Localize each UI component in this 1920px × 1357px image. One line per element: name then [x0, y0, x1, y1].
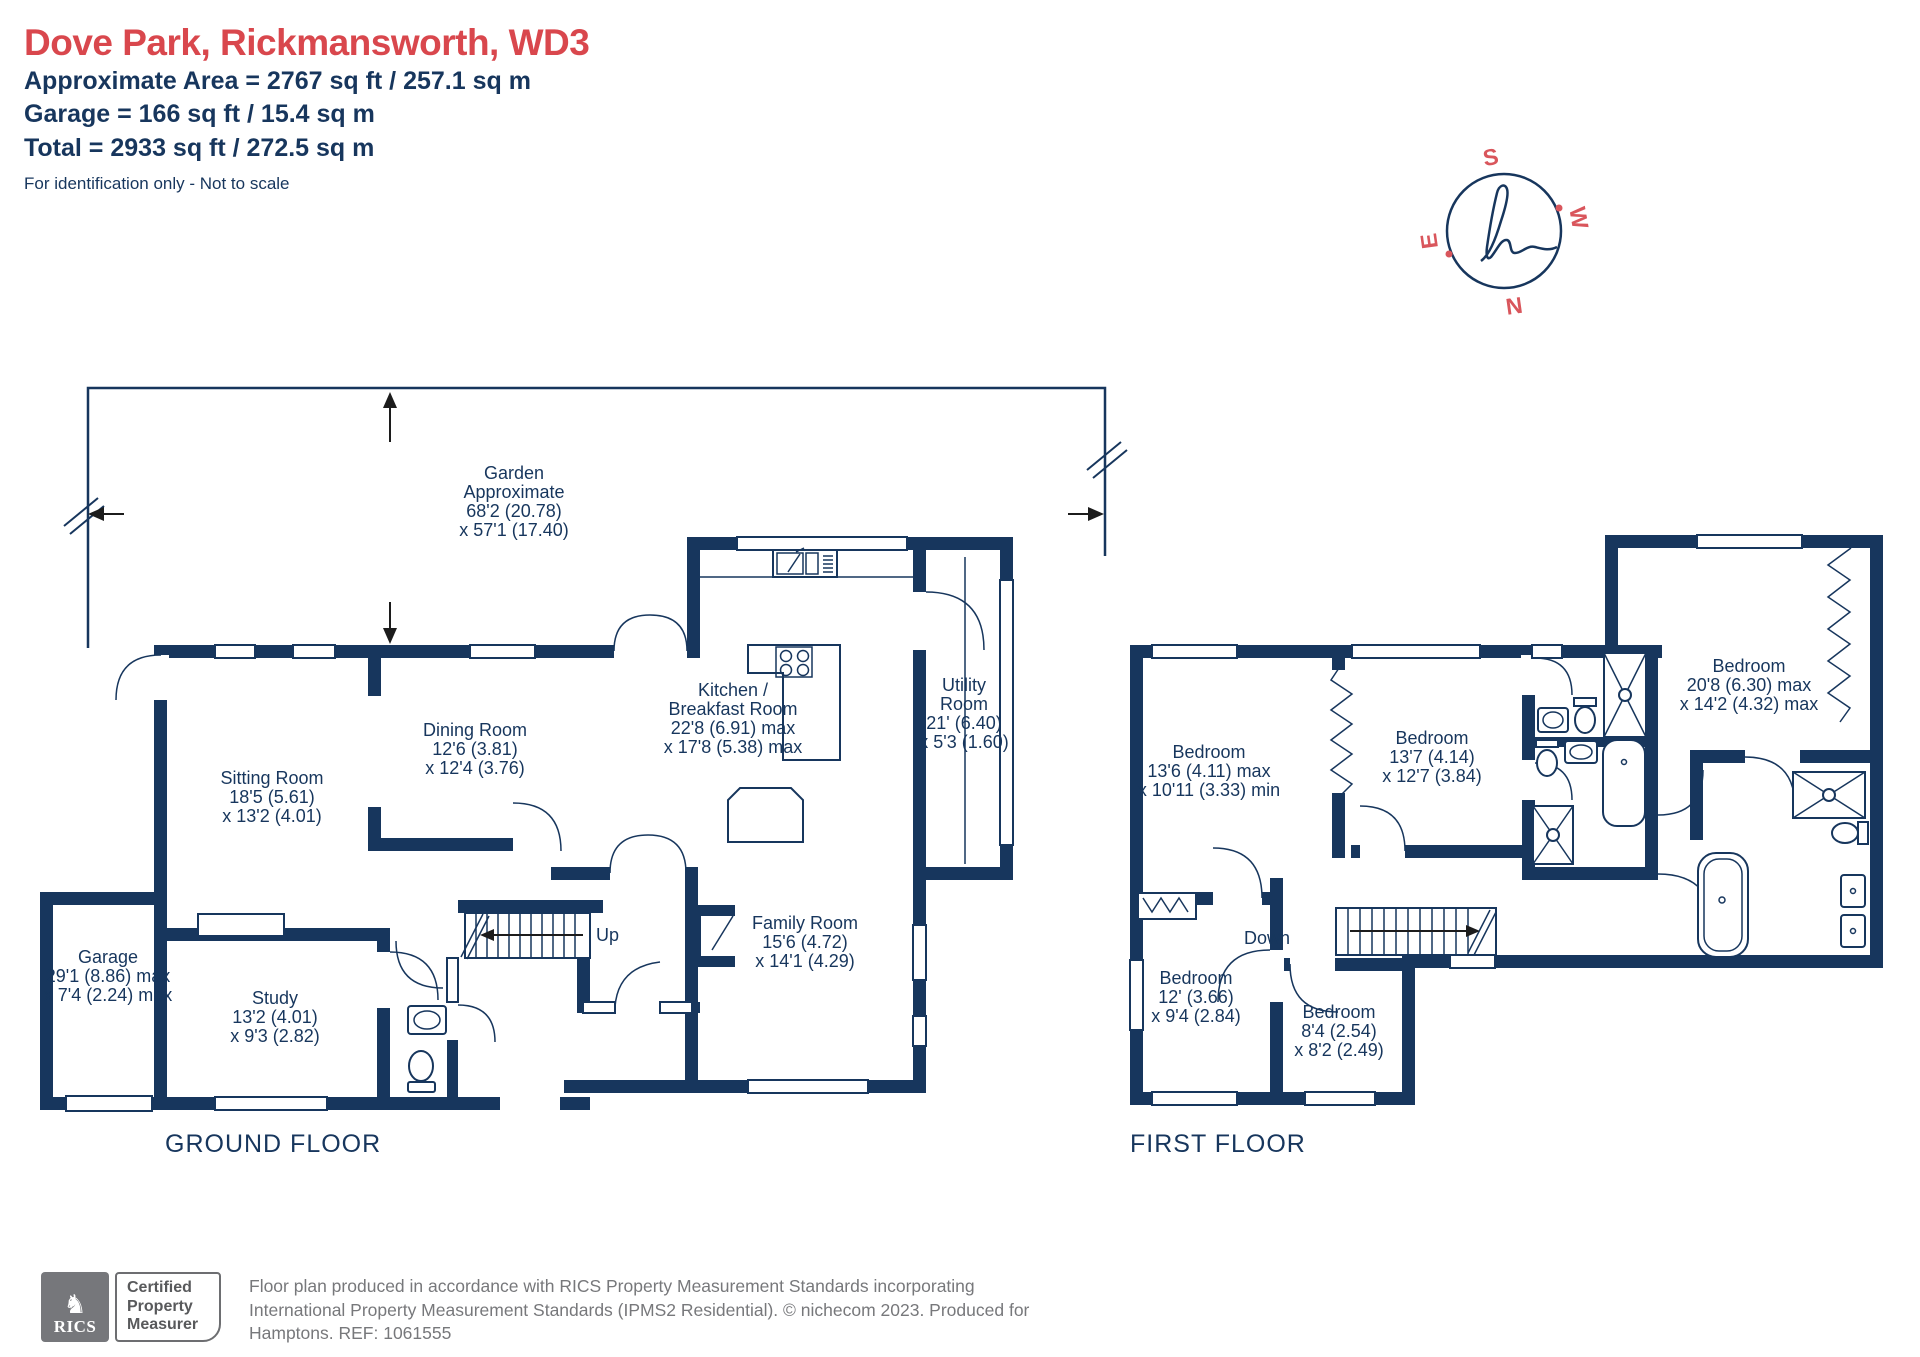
- svg-text:Room: Room: [940, 694, 988, 714]
- svg-text:x 10'11 (3.33) min: x 10'11 (3.33) min: [1138, 780, 1280, 800]
- dining-room-label: Dining Room: [423, 720, 527, 740]
- svg-text:Breakfast Room: Breakfast Room: [668, 699, 797, 719]
- svg-text:13'6 (4.11) max: 13'6 (4.11) max: [1147, 761, 1270, 781]
- svg-text:x 13'2 (4.01): x 13'2 (4.01): [222, 806, 322, 826]
- svg-text:12' (3.66): 12' (3.66): [1158, 987, 1233, 1007]
- first-walls: [1130, 535, 1883, 1105]
- svg-text:x 9'4 (2.84): x 9'4 (2.84): [1151, 1006, 1240, 1026]
- floorplans: Garden Approximate 68'2 (20.78) x 57'1 (…: [0, 0, 1920, 1357]
- ground-labels: Garden Approximate 68'2 (20.78) x 57'1 (…: [44, 463, 1009, 1158]
- stairs-up: [461, 913, 590, 959]
- family-room-label: Family Room: [752, 913, 858, 933]
- svg-text:12'6 (3.81): 12'6 (3.81): [432, 739, 518, 759]
- first-floor-plan: Bedroom 13'6 (4.11) max x 10'11 (3.33) m…: [1130, 535, 1883, 1158]
- rics-lion-icon: ♞: [63, 1291, 86, 1317]
- svg-text:22'8 (6.91) max: 22'8 (6.91) max: [671, 718, 796, 738]
- svg-text:x 17'8 (5.38) max: x 17'8 (5.38) max: [664, 737, 803, 757]
- svg-text:x 5'3 (1.60): x 5'3 (1.60): [919, 732, 1008, 752]
- svg-text:29'1 (8.86) max: 29'1 (8.86) max: [46, 966, 171, 986]
- rics-label: RICS: [54, 1317, 97, 1337]
- svg-text:x 14'2 (4.32) max: x 14'2 (4.32) max: [1680, 694, 1819, 714]
- ground-floor-title: GROUND FLOOR: [165, 1130, 381, 1158]
- bathtub-icon: [1698, 853, 1748, 957]
- shower-icon: [1533, 806, 1573, 864]
- bathtub-icon: [1603, 740, 1645, 826]
- bedroom1-label: Bedroom: [1172, 742, 1245, 762]
- svg-text:x 8'2 (2.49): x 8'2 (2.49): [1294, 1040, 1383, 1060]
- svg-text:Approximate: Approximate: [463, 482, 564, 502]
- svg-text:20'8 (6.30) max: 20'8 (6.30) max: [1687, 675, 1812, 695]
- bedroom5-label: Bedroom: [1302, 1002, 1375, 1022]
- garden-boundary: [64, 388, 1127, 648]
- breakfast-table: [728, 788, 803, 842]
- certified-property-measurer-badge: Certified Property Measurer: [115, 1272, 221, 1342]
- shower-icon: [1604, 653, 1646, 737]
- svg-text:18'5 (5.61): 18'5 (5.61): [229, 787, 315, 807]
- toilet-icon: [1832, 822, 1868, 844]
- footer-disclaimer: Floor plan produced in accordance with R…: [249, 1272, 1029, 1346]
- svg-text:x 12'7 (3.84): x 12'7 (3.84): [1382, 766, 1482, 786]
- sink-icon: [1841, 875, 1865, 947]
- garden-label: Garden: [484, 463, 544, 483]
- kitchen-label: Kitchen /: [698, 680, 768, 700]
- first-floor-title: FIRST FLOOR: [1130, 1130, 1306, 1158]
- sink-icon: [1538, 708, 1568, 732]
- toilet-icon: [1574, 698, 1596, 733]
- study-label: Study: [252, 988, 298, 1008]
- stairs-up-label: Up: [596, 925, 619, 945]
- cloakroom-sink-icon: [408, 1006, 446, 1034]
- sink-icon: [1565, 741, 1597, 763]
- kitchen-sink-icon: [773, 548, 837, 577]
- toilet-icon: [1536, 740, 1558, 776]
- utility-room-label: Utility: [942, 675, 986, 695]
- footer: ♞ RICS Certified Property Measurer Floor…: [41, 1272, 1029, 1346]
- floorplan-page: Dove Park, Rickmansworth, WD3 Approximat…: [0, 0, 1920, 1357]
- svg-text:8'4 (2.54): 8'4 (2.54): [1301, 1021, 1376, 1041]
- svg-text:x 9'3 (2.82): x 9'3 (2.82): [230, 1026, 319, 1046]
- bedroom3-label: Bedroom: [1712, 656, 1785, 676]
- svg-text:13'2 (4.01): 13'2 (4.01): [232, 1007, 318, 1027]
- svg-text:x 14'1 (4.29): x 14'1 (4.29): [755, 951, 855, 971]
- ground-walls: [40, 537, 1013, 1110]
- bedroom2-label: Bedroom: [1395, 728, 1468, 748]
- garage-label: Garage: [78, 947, 138, 967]
- rics-logo: ♞ RICS: [41, 1272, 109, 1342]
- svg-text:x 12'4 (3.76): x 12'4 (3.76): [425, 758, 525, 778]
- stairs-down-label: Down: [1244, 928, 1290, 948]
- svg-text:13'7 (4.14): 13'7 (4.14): [1389, 747, 1475, 767]
- sitting-room-label: Sitting Room: [220, 768, 323, 788]
- bedroom4-label: Bedroom: [1159, 968, 1232, 988]
- svg-text:x 7'4 (2.24) max: x 7'4 (2.24) max: [44, 985, 173, 1005]
- cloakroom-toilet-icon: [408, 1051, 435, 1092]
- ground-floor-plan: Garden Approximate 68'2 (20.78) x 57'1 (…: [40, 388, 1127, 1158]
- ground-windows: [66, 537, 1013, 1111]
- shower-icon: [1793, 772, 1865, 818]
- stairs-down: [1336, 908, 1496, 955]
- svg-text:15'6 (4.72): 15'6 (4.72): [762, 932, 848, 952]
- svg-text:68'2 (20.78): 68'2 (20.78): [466, 501, 562, 521]
- svg-text:21' (6.40): 21' (6.40): [926, 713, 1001, 733]
- svg-text:x 57'1 (17.40): x 57'1 (17.40): [459, 520, 569, 540]
